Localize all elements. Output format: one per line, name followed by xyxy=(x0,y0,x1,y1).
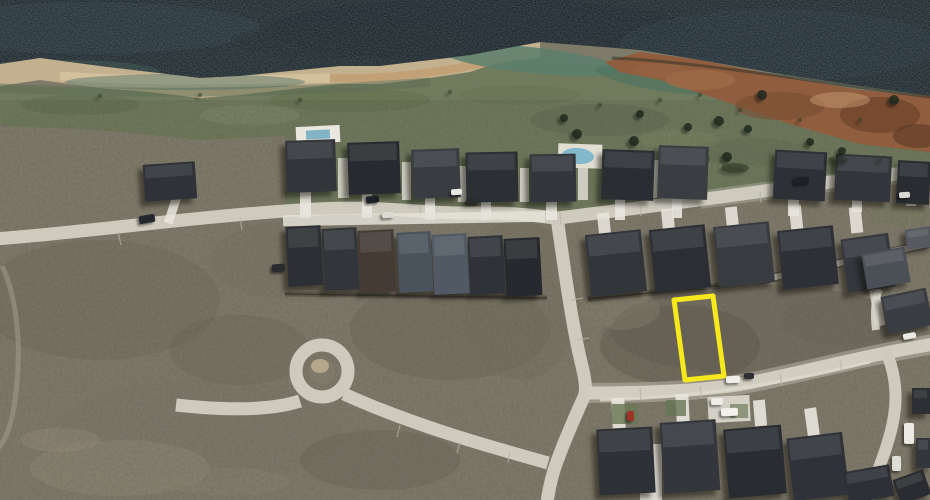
tree xyxy=(698,93,702,97)
tree xyxy=(560,114,568,122)
tree xyxy=(572,129,582,139)
car xyxy=(467,198,479,205)
roof-facet xyxy=(918,440,928,450)
tree xyxy=(838,147,846,155)
car xyxy=(366,195,380,203)
roof-facet xyxy=(598,429,650,453)
driveway xyxy=(338,158,349,198)
driveway xyxy=(578,164,588,200)
tree xyxy=(738,108,742,112)
roof-facet xyxy=(434,235,465,256)
tree xyxy=(598,103,602,107)
tree xyxy=(878,158,882,162)
tree xyxy=(198,93,202,97)
dirt-pile xyxy=(311,359,329,373)
tree xyxy=(722,152,732,162)
tree xyxy=(658,98,662,102)
driveway xyxy=(300,190,311,218)
car xyxy=(899,192,910,199)
car xyxy=(794,176,809,184)
car xyxy=(272,263,286,272)
car xyxy=(451,189,462,196)
tree xyxy=(448,90,452,94)
lawn xyxy=(612,404,638,424)
driveway xyxy=(789,204,803,229)
roof-facet xyxy=(532,156,573,172)
tree-shadow xyxy=(828,156,848,164)
tree xyxy=(629,136,639,146)
roof-facet xyxy=(287,141,333,159)
driveway xyxy=(402,162,411,200)
roof-facet xyxy=(399,233,429,254)
tree xyxy=(858,118,862,122)
driveway xyxy=(520,168,529,202)
driveway xyxy=(597,212,611,235)
car xyxy=(744,373,754,380)
tree xyxy=(98,94,102,98)
roof-facet xyxy=(349,143,397,161)
aerial-photo xyxy=(0,0,930,500)
trailer xyxy=(904,423,914,444)
tree xyxy=(798,118,802,122)
tree xyxy=(714,116,724,126)
roof-facet xyxy=(468,154,515,171)
tree xyxy=(636,110,644,118)
car xyxy=(382,211,395,218)
aerial-map-image xyxy=(0,0,930,500)
roof-facet xyxy=(914,390,927,398)
tree xyxy=(744,125,752,133)
swimming-pool xyxy=(306,129,330,139)
tree xyxy=(889,95,899,105)
roof-facet xyxy=(660,147,706,166)
marsh-strip xyxy=(65,74,305,90)
trailer xyxy=(892,456,901,471)
tree xyxy=(757,90,767,100)
roof-facet xyxy=(725,427,780,454)
roof-facet xyxy=(413,150,457,167)
car xyxy=(711,398,723,405)
roof-facet xyxy=(662,421,714,447)
roof-facet xyxy=(288,227,319,248)
eroded-bank xyxy=(735,92,825,120)
red-car xyxy=(627,411,634,421)
tree xyxy=(298,98,302,102)
roof-facet xyxy=(470,237,501,257)
tree-shadow xyxy=(721,163,749,173)
tree xyxy=(684,123,692,131)
driveway xyxy=(753,400,767,427)
lawn xyxy=(666,400,686,416)
roof-facet xyxy=(324,229,355,250)
car xyxy=(726,376,740,384)
roof-facet xyxy=(506,239,538,259)
eroded-bank xyxy=(810,92,870,108)
white-van xyxy=(721,408,738,417)
tree xyxy=(806,138,814,146)
roof-facet xyxy=(360,231,392,252)
roof-facet xyxy=(899,162,928,177)
roof-facet xyxy=(776,152,824,170)
roof-facet xyxy=(604,151,652,169)
